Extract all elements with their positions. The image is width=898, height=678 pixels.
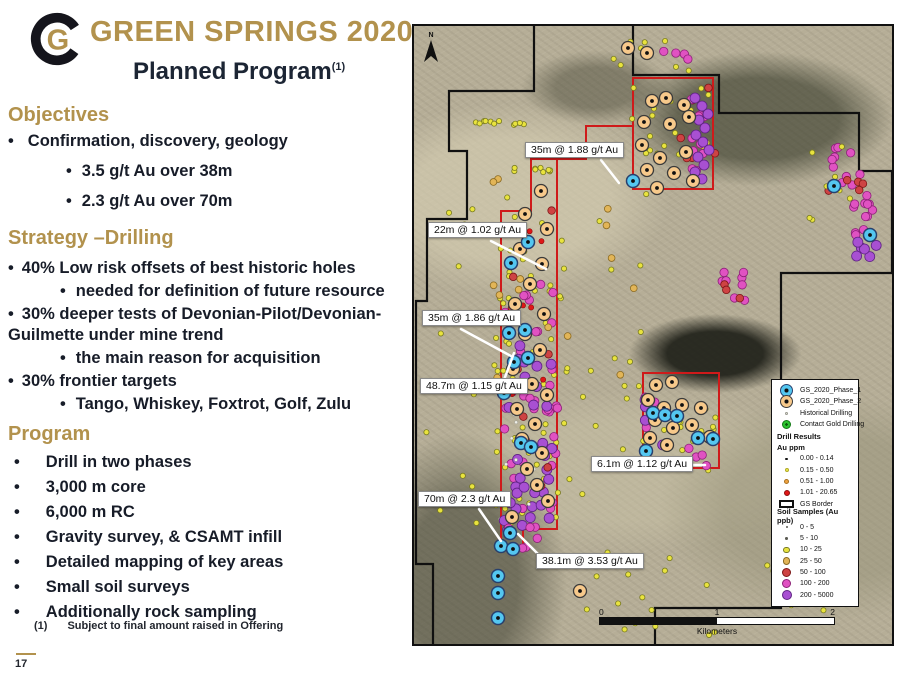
map-callout: 35m @ 1.88 g/t Au	[525, 142, 624, 158]
map: N 35m @ 1.88 g/t Au22m @ 1.02 g/t Au35m …	[412, 24, 894, 646]
map-callout: 22m @ 1.02 g/t Au	[428, 222, 527, 238]
legend-symbol-dr0	[778, 458, 795, 461]
scale-unit-label: Kilometers	[599, 626, 835, 636]
bullet-text: Detailed mapping of key areas	[46, 553, 284, 571]
scale-bar: 0 1 2 Kilometers	[599, 607, 835, 636]
svg-text:N: N	[428, 32, 433, 39]
legend-label: 50 - 100	[800, 569, 826, 576]
bullet-icon: •	[66, 162, 72, 180]
bullet-item: •Confirmation, discovery, geology	[8, 131, 410, 152]
bullet-text: Drill in two phases	[46, 453, 192, 471]
slide-title: GREEN SPRINGS 2020	[90, 16, 413, 49]
section-objectives: Objectives•Confirmation, discovery, geol…	[8, 104, 410, 221]
bullet-item: •Gravity survey, & CSAMT infill	[8, 527, 410, 548]
bullet-text: 3.5 g/t Au over 38m	[82, 162, 233, 180]
footnote-text: Subject to final amount raised in Offeri…	[67, 620, 283, 632]
bullet-text: Additionally rock sampling	[46, 603, 257, 621]
map-callout: 35m @ 1.86 g/t Au	[422, 310, 521, 326]
bullet-item: •30% frontier targets	[8, 371, 410, 392]
legend-label: 5 - 10	[800, 535, 818, 542]
legend-item: Historical Drilling	[775, 408, 855, 419]
north-arrow-icon: N	[424, 32, 438, 62]
map-callout: 6.1m @ 1.12 g/t Au	[591, 456, 693, 472]
legend-item: 200 - 5000	[775, 590, 855, 601]
legend-symbol-s0	[778, 526, 795, 528]
bullet-text: needed for definition of future resource	[76, 282, 385, 300]
bullet-item: •40% Low risk offsets of best historic h…	[8, 258, 410, 279]
scale-bar-graphic	[599, 617, 835, 625]
legend-label: GS_2020_Phase_2	[800, 398, 861, 405]
legend-header: Soil Samples (Au ppb)	[775, 510, 855, 521]
bullet-icon: •	[14, 503, 20, 521]
map-callout: 38.1m @ 3.53 g/t Au	[536, 553, 644, 569]
bullet-text: 30% frontier targets	[22, 372, 177, 390]
legend-label: 0.15 - 0.50	[800, 467, 833, 474]
legend-label: 200 - 5000	[800, 592, 833, 599]
legend-symbol-s1	[778, 537, 795, 540]
section-program: Program•Drill in two phases•3,000 m core…	[8, 423, 410, 627]
legend-symbol-s4	[778, 568, 795, 577]
legend-label: 10 - 25	[800, 546, 822, 553]
page-number-rule	[16, 653, 36, 655]
legend-item: GS_2020_Phase_1	[775, 385, 855, 396]
legend-symbol-s2	[778, 547, 795, 554]
legend-symbol-p2	[778, 395, 795, 408]
legend-item: GS_2020_Phase_2	[775, 396, 855, 407]
section-strategy-drilling: Strategy –Drilling•40% Low risk offsets …	[8, 227, 410, 417]
bullet-icon: •	[14, 553, 20, 571]
bullet-item: •3.5 g/t Au over 38m	[8, 161, 410, 182]
legend-label: 0.00 - 0.14	[800, 455, 833, 462]
section-heading: Program	[8, 423, 410, 446]
legend-label: 1.01 - 20.65	[800, 489, 837, 496]
legend-item: 10 - 25	[775, 544, 855, 555]
legend-label: 0.51 - 1.00	[800, 478, 833, 485]
scale-tick: 1	[715, 607, 720, 617]
subtitle-footnote-ref: (1)	[332, 61, 345, 73]
legend-symbol-dr1	[778, 468, 795, 472]
legend-item: 0 - 5	[775, 522, 855, 533]
legend-symbol-dr3	[778, 490, 795, 496]
map-callout: 48.7m @ 1.15 g/t Au	[420, 378, 528, 394]
bullet-item: •Tango, Whiskey, Foxtrot, Golf, Zulu	[8, 394, 410, 415]
legend-symbol-hist	[778, 412, 795, 415]
svg-text:G: G	[47, 25, 70, 57]
footnote-marker: (1)	[34, 620, 47, 632]
legend-symbol-s3	[778, 557, 795, 565]
bullet-icon: •	[8, 372, 14, 390]
legend-label: Historical Drilling	[800, 410, 852, 417]
scale-tick: 0	[599, 607, 604, 617]
footnote: (1)Subject to final amount raised in Off…	[34, 620, 283, 632]
legend-header: Au ppm	[775, 442, 855, 453]
subtitle-text: Planned Program	[133, 58, 332, 85]
bullet-icon: •	[14, 578, 20, 596]
slide: { "slide": { "logo_letter": "G", "title"…	[0, 0, 898, 678]
bullet-item: •30% deeper tests of Devonian-Pilot/Devo…	[8, 304, 410, 346]
bullet-text: Tango, Whiskey, Foxtrot, Golf, Zulu	[76, 395, 351, 413]
bullet-icon: •	[8, 132, 14, 150]
slide-subtitle: Planned Program(1)	[133, 58, 345, 86]
bullet-icon: •	[66, 192, 72, 210]
scale-ticks: 0 1 2	[599, 607, 835, 617]
bullet-icon: •	[14, 603, 20, 621]
legend-item: Contact Gold Drilling	[775, 419, 855, 430]
legend-item: 1.01 - 20.65	[775, 487, 855, 498]
bullet-text: Gravity survey, & CSAMT infill	[46, 528, 282, 546]
legend-label: GS_2020_Phase_1	[800, 387, 861, 394]
section-heading: Strategy –Drilling	[8, 227, 410, 250]
legend-header: Drill Results	[775, 431, 855, 442]
legend-symbol-dr2	[778, 479, 795, 484]
bullet-text: Confirmation, discovery, geology	[28, 132, 288, 150]
bullet-icon: •	[60, 395, 66, 413]
bullet-item: •6,000 m RC	[8, 502, 410, 523]
bullet-item: •needed for definition of future resourc…	[8, 281, 410, 302]
bullet-item: •the main reason for acquisition	[8, 348, 410, 369]
legend-symbol-s5	[778, 579, 795, 588]
legend-item: 0.51 - 1.00	[775, 476, 855, 487]
bullet-text: 40% Low risk offsets of best historic ho…	[22, 259, 356, 277]
bullet-text: 2.3 g/t Au over 70m	[82, 192, 233, 210]
legend-item: 0.15 - 0.50	[775, 465, 855, 476]
legend-label: Contact Gold Drilling	[800, 421, 864, 428]
bullet-icon: •	[60, 349, 66, 367]
bullet-text: 30% deeper tests of Devonian-Pilot/Devon…	[8, 305, 381, 344]
legend-item: 100 - 200	[775, 578, 855, 589]
legend-item: 25 - 50	[775, 556, 855, 567]
company-logo-icon: G	[28, 10, 86, 68]
bullet-icon: •	[8, 305, 14, 323]
bullet-item: •Small soil surveys	[8, 577, 410, 598]
section-heading: Objectives	[8, 104, 410, 127]
bullet-text: the main reason for acquisition	[76, 349, 321, 367]
legend-item: 0.00 - 0.14	[775, 453, 855, 464]
scale-tick: 2	[830, 607, 835, 617]
bullet-icon: •	[14, 453, 20, 471]
bullet-text: Small soil surveys	[46, 578, 190, 596]
legend-item: 50 - 100	[775, 567, 855, 578]
bullet-item: •Detailed mapping of key areas	[8, 552, 410, 573]
bullet-icon: •	[60, 282, 66, 300]
bullet-icon: •	[8, 259, 14, 277]
map-callout: 70m @ 2.3 g/t Au	[418, 491, 511, 507]
bullet-text: 6,000 m RC	[46, 503, 135, 521]
bullet-icon: •	[14, 528, 20, 546]
legend-label: 25 - 50	[800, 558, 822, 565]
legend-item: 5 - 10	[775, 533, 855, 544]
legend-label: 100 - 200	[800, 580, 830, 587]
legend-symbol-s6	[778, 590, 795, 600]
bullet-item: •Drill in two phases	[8, 452, 410, 473]
legend-symbol-green	[778, 420, 795, 429]
map-legend: GS_2020_Phase_1GS_2020_Phase_2Historical…	[771, 379, 859, 607]
bullet-text: 3,000 m core	[46, 478, 146, 496]
page-number: 17	[15, 658, 27, 670]
bullet-item: •2.3 g/t Au over 70m	[8, 191, 410, 212]
bullet-item: •3,000 m core	[8, 477, 410, 498]
legend-label: 0 - 5	[800, 524, 814, 531]
bullet-icon: •	[14, 478, 20, 496]
